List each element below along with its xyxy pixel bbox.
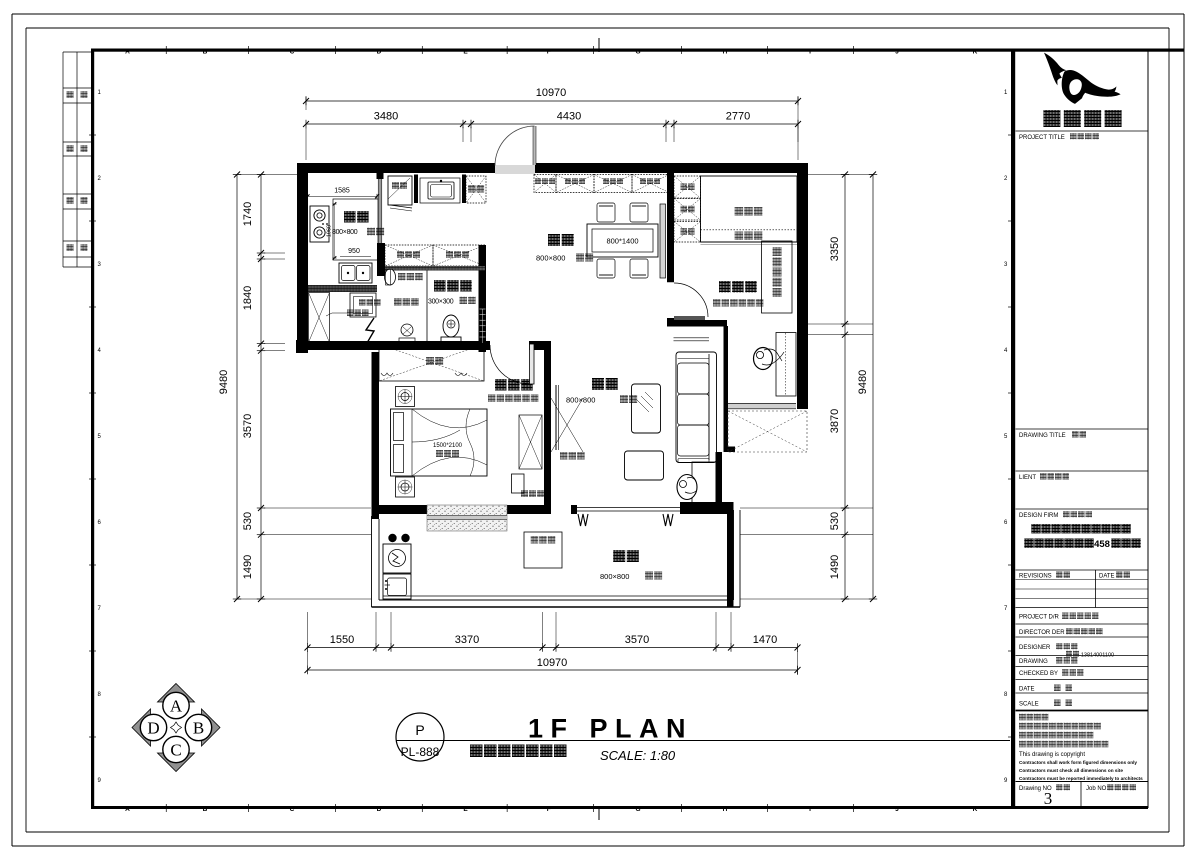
svg-text:SCALE: SCALE (1019, 702, 1039, 708)
svg-text:Contractors must check all dim: Contractors must check all dimensions on… (1019, 768, 1123, 773)
svg-text:1490: 1490 (242, 555, 254, 579)
svg-text:1550: 1550 (330, 634, 354, 646)
svg-text:DESIGN FIRM: DESIGN FIRM (1019, 513, 1058, 519)
svg-text:C: C (290, 806, 295, 813)
svg-text:F: F (547, 49, 551, 56)
svg-text:B: B (193, 719, 204, 738)
svg-text:3480: 3480 (374, 111, 398, 123)
svg-text:E: E (463, 49, 468, 56)
svg-text:1585: 1585 (334, 188, 350, 195)
svg-text:PROJECT D/R: PROJECT D/R (1019, 615, 1060, 621)
svg-text:This drawing is copyright: This drawing is copyright (1019, 752, 1085, 758)
svg-text:300×300: 300×300 (428, 299, 454, 306)
svg-text:800×800: 800×800 (566, 396, 595, 405)
svg-text:B: B (203, 49, 208, 56)
svg-text:3870: 3870 (829, 409, 841, 433)
svg-text:A: A (125, 806, 130, 813)
svg-text:CHECKED BY: CHECKED BY (1019, 671, 1058, 677)
svg-text:K: K (973, 49, 978, 56)
svg-text:K: K (973, 806, 978, 813)
svg-text:10970: 10970 (536, 87, 567, 99)
svg-text:C: C (170, 741, 181, 760)
svg-text:3370: 3370 (455, 634, 479, 646)
svg-text:DIRECTOR DER: DIRECTOR DER (1019, 630, 1065, 636)
svg-text:1740: 1740 (242, 202, 254, 226)
svg-text:D: D (377, 806, 382, 813)
svg-text:9480: 9480 (857, 370, 869, 394)
svg-text:F: F (547, 806, 551, 813)
svg-text:E: E (463, 806, 468, 813)
svg-text:1490: 1490 (829, 555, 841, 579)
svg-text:1F PLAN: 1F PLAN (528, 714, 693, 744)
svg-text:1500*2100: 1500*2100 (433, 443, 463, 449)
svg-text:3570: 3570 (625, 634, 649, 646)
svg-text:SCALE: 1:80: SCALE: 1:80 (600, 748, 676, 763)
svg-text:REVISIONS: REVISIONS (1019, 574, 1052, 580)
svg-text:J: J (895, 49, 899, 56)
svg-text:530: 530 (242, 512, 254, 530)
svg-text:Contractors must be reported i: Contractors must be reported immediately… (1019, 776, 1143, 781)
svg-text:800*1400: 800*1400 (606, 237, 638, 246)
svg-text:D: D (147, 719, 159, 738)
svg-text:A: A (125, 49, 130, 56)
svg-text:B: B (203, 806, 208, 813)
svg-text:D: D (377, 49, 382, 56)
svg-text:A: A (170, 697, 183, 716)
svg-text:H: H (723, 49, 728, 56)
svg-text:DATE: DATE (1019, 687, 1035, 693)
svg-text:3: 3 (1044, 789, 1053, 808)
svg-text:10970: 10970 (537, 657, 568, 669)
svg-text:G: G (635, 806, 640, 813)
svg-text:2770: 2770 (726, 111, 750, 123)
svg-text:Contractors shall work form fi: Contractors shall work form figured dime… (1019, 760, 1137, 765)
svg-text:Job NO: Job NO (1086, 786, 1107, 792)
svg-text:J: J (895, 806, 899, 813)
svg-text:3570: 3570 (242, 414, 254, 438)
svg-text:1470: 1470 (753, 634, 777, 646)
svg-text:800×800: 800×800 (332, 229, 358, 236)
svg-text:I: I (809, 806, 811, 813)
svg-text:3350: 3350 (829, 237, 841, 261)
svg-text:DESIGNER: DESIGNER (1019, 645, 1051, 651)
svg-text:950: 950 (348, 248, 360, 255)
svg-text:C: C (290, 49, 295, 56)
svg-text:P: P (415, 722, 424, 738)
svg-text:9480: 9480 (218, 370, 230, 394)
svg-text:PROJECT TITLE: PROJECT TITLE (1019, 135, 1065, 141)
svg-text:458: 458 (1094, 539, 1110, 550)
svg-text:I: I (809, 49, 811, 56)
svg-text:LIENT: LIENT (1019, 475, 1036, 481)
svg-text:DATE: DATE (1099, 574, 1115, 580)
svg-text:800×800: 800×800 (536, 254, 565, 263)
svg-text:1840: 1840 (242, 286, 254, 310)
svg-text:DRAWING TITLE: DRAWING TITLE (1019, 433, 1066, 439)
svg-text:DRAWING: DRAWING (1019, 659, 1048, 665)
svg-text:PL-888: PL-888 (401, 745, 440, 759)
svg-text:530: 530 (829, 512, 841, 530)
svg-text:4430: 4430 (557, 111, 581, 123)
svg-text:G: G (635, 49, 640, 56)
svg-text:800×800: 800×800 (600, 572, 629, 581)
svg-text:H: H (723, 806, 728, 813)
